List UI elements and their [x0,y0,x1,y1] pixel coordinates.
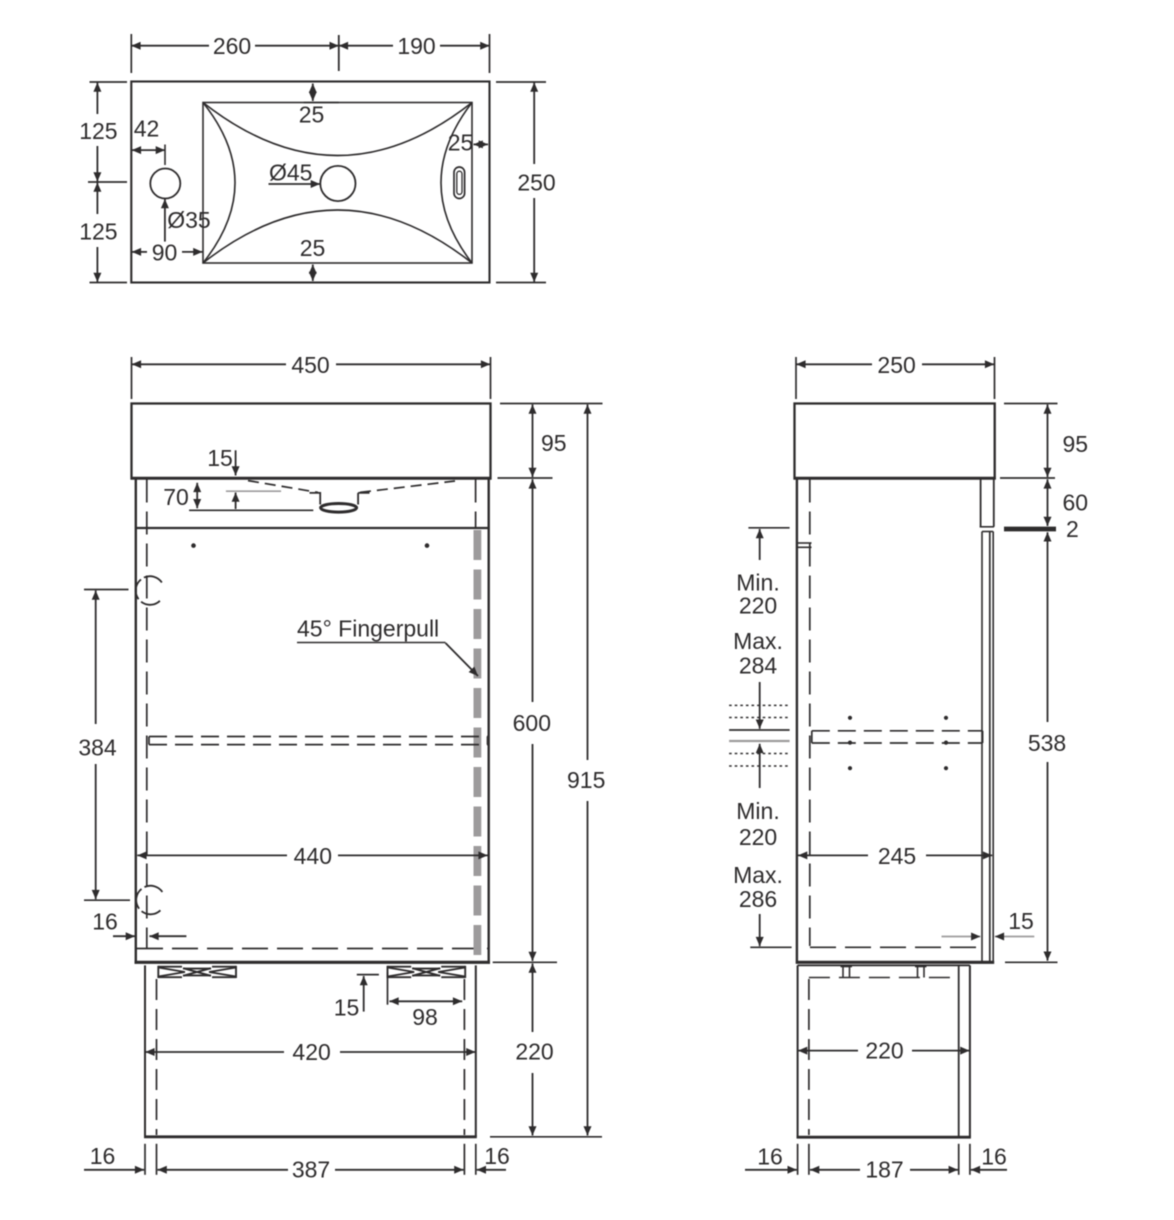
svg-text:245: 245 [878,843,916,869]
svg-text:2: 2 [1066,516,1079,542]
svg-text:440: 440 [294,843,332,869]
svg-text:98: 98 [412,1004,438,1030]
svg-text:538: 538 [1028,730,1066,756]
svg-text:42: 42 [134,116,160,142]
svg-text:25: 25 [299,102,325,128]
svg-text:16: 16 [90,1143,116,1169]
svg-text:220: 220 [739,824,777,850]
svg-text:25: 25 [448,130,474,156]
svg-text:125: 125 [79,219,117,245]
svg-text:15: 15 [334,995,360,1021]
svg-text:190: 190 [397,33,435,59]
svg-text:220: 220 [865,1038,903,1064]
svg-text:Max.: Max. [733,628,783,654]
svg-text:284: 284 [739,653,778,679]
svg-text:260: 260 [213,33,251,59]
svg-text:250: 250 [877,352,915,378]
svg-text:16: 16 [92,909,118,935]
svg-text:384: 384 [78,735,117,761]
svg-text:70: 70 [163,484,189,510]
svg-text:286: 286 [739,886,777,912]
svg-text:220: 220 [739,593,777,619]
svg-text:220: 220 [515,1039,553,1065]
svg-text:15: 15 [1008,908,1034,934]
svg-text:250: 250 [517,170,555,196]
svg-text:45° Fingerpull: 45° Fingerpull [297,616,439,642]
svg-text:Max.: Max. [733,862,783,888]
svg-text:450: 450 [291,352,329,378]
svg-text:95: 95 [541,430,567,456]
svg-text:387: 387 [292,1157,330,1183]
svg-text:16: 16 [981,1144,1007,1170]
svg-text:Ø45: Ø45 [269,160,312,186]
svg-text:60: 60 [1063,490,1089,516]
svg-text:95: 95 [1063,431,1089,457]
svg-text:Min.: Min. [736,798,779,824]
svg-text:915: 915 [567,767,605,793]
svg-text:25: 25 [300,235,326,261]
svg-text:16: 16 [484,1143,510,1169]
svg-text:Ø35: Ø35 [167,207,210,233]
svg-text:90: 90 [152,240,178,266]
svg-text:187: 187 [865,1157,903,1183]
svg-text:125: 125 [79,118,117,144]
svg-text:15: 15 [207,445,233,471]
svg-text:16: 16 [757,1144,783,1170]
svg-text:600: 600 [513,710,551,736]
svg-text:420: 420 [292,1039,330,1065]
